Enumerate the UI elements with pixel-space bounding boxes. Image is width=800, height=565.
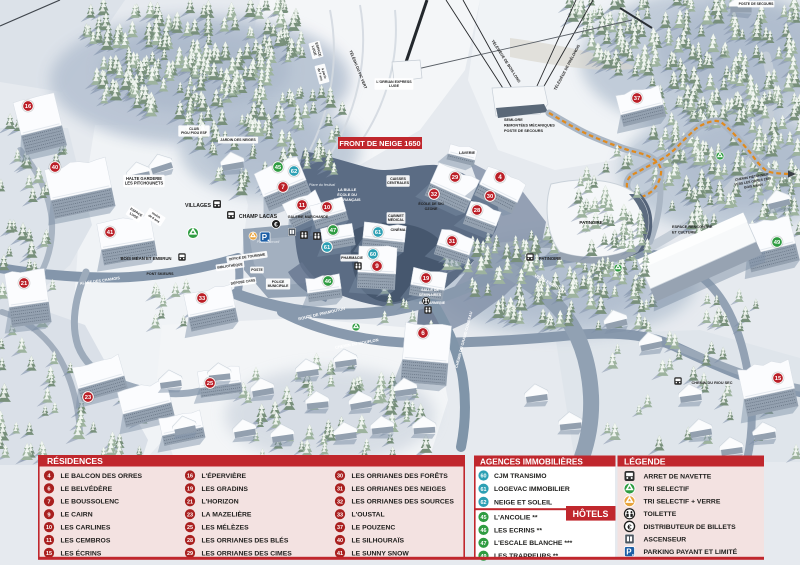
svg-text:25: 25: [187, 525, 193, 531]
svg-text:33: 33: [337, 512, 343, 518]
svg-text:L'ÉPERVIÈRE: L'ÉPERVIÈRE: [202, 471, 247, 480]
svg-text:PIOU PIOU ESF: PIOU PIOU ESF: [181, 131, 208, 135]
svg-text:61: 61: [481, 487, 487, 493]
svg-text:P: P: [262, 233, 268, 242]
svg-text:61: 61: [324, 245, 331, 251]
svg-text:9: 9: [375, 263, 379, 270]
svg-text:CAISSES: CAISSES: [390, 177, 406, 181]
svg-text:L'ANCOLIE **: L'ANCOLIE **: [494, 514, 538, 521]
svg-text:LE SUNNY SNOW: LE SUNNY SNOW: [352, 550, 410, 557]
svg-text:DISTRIBUTEUR DE BILLETS: DISTRIBUTEUR DE BILLETS: [644, 524, 737, 531]
svg-text:29: 29: [187, 551, 193, 557]
svg-text:LE BALCON DES ORRES: LE BALCON DES ORRES: [61, 473, 143, 480]
svg-text:SALLE DE: SALLE DE: [421, 288, 439, 292]
svg-text:47: 47: [481, 541, 487, 547]
svg-text:TRI SELECTIF + VERRE: TRI SELECTIF + VERRE: [644, 499, 721, 506]
svg-text:23: 23: [85, 395, 92, 401]
svg-text:7: 7: [281, 184, 285, 191]
svg-text:LE BOUSSOLENC: LE BOUSSOLENC: [61, 499, 120, 506]
svg-text:LES ÉCRINS: LES ÉCRINS: [61, 548, 102, 557]
svg-text:41: 41: [107, 230, 114, 236]
svg-text:31: 31: [337, 487, 343, 493]
svg-text:28: 28: [474, 208, 481, 214]
svg-text:LES ECRINS **: LES ECRINS **: [494, 527, 542, 534]
svg-text:LES ORRIANES DES CIMES: LES ORRIANES DES CIMES: [202, 550, 293, 557]
svg-text:SEMLORE: SEMLORE: [504, 118, 523, 122]
svg-text:32: 32: [431, 192, 437, 198]
svg-text:LES ORRIANES DES NEIGES: LES ORRIANES DES NEIGES: [352, 486, 447, 493]
svg-text:NEIGE ET SOLEIL: NEIGE ET SOLEIL: [494, 499, 552, 506]
svg-text:31: 31: [449, 239, 456, 245]
svg-text:33: 33: [199, 296, 206, 302]
svg-text:21: 21: [187, 499, 193, 505]
svg-text:30: 30: [337, 474, 343, 480]
svg-text:OZONE: OZONE: [425, 207, 438, 211]
svg-text:BOIS MÉAN ET EMBRUN: BOIS MÉAN ET EMBRUN: [120, 256, 171, 261]
svg-text:MÉDICAL: MÉDICAL: [388, 217, 405, 222]
svg-text:LUGE: LUGE: [389, 84, 400, 88]
svg-text:CHAMP LACAS: CHAMP LACAS: [239, 214, 278, 220]
svg-text:FRONT DE NEIGE 1650: FRONT DE NEIGE 1650: [339, 139, 420, 148]
svg-text:HÔTELS: HÔTELS: [573, 508, 609, 519]
svg-text:16: 16: [25, 104, 32, 110]
svg-text:L'OUSTAL: L'OUSTAL: [352, 512, 385, 519]
svg-text:29: 29: [452, 175, 459, 181]
svg-text:40: 40: [52, 165, 58, 171]
svg-text:ET CULTURE: ET CULTURE: [672, 230, 696, 234]
svg-text:CINÉMA: CINÉMA: [391, 227, 406, 232]
svg-text:11: 11: [46, 538, 52, 544]
svg-text:ÉCOLE DU: ÉCOLE DU: [337, 192, 357, 197]
svg-text:47: 47: [330, 228, 336, 234]
svg-text:JARDIN DES NEIGES: JARDIN DES NEIGES: [220, 138, 256, 142]
svg-text:46: 46: [481, 528, 487, 534]
svg-text:19: 19: [187, 487, 193, 493]
svg-text:4: 4: [498, 174, 502, 181]
svg-text:25: 25: [207, 381, 214, 387]
svg-text:61: 61: [375, 230, 382, 236]
svg-text:LES MÉLÈZES: LES MÉLÈZES: [202, 523, 250, 532]
svg-text:LOGEVAC IMMOBILIER: LOGEVAC IMMOBILIER: [494, 486, 570, 493]
svg-text:LES ORRIANES DES BLÉS: LES ORRIANES DES BLÉS: [202, 535, 289, 544]
svg-text:LÉGENDE: LÉGENDE: [624, 457, 666, 467]
svg-text:SKI FRANÇAIS: SKI FRANÇAIS: [333, 198, 360, 202]
svg-text:62: 62: [291, 169, 297, 175]
svg-text:37: 37: [337, 525, 343, 531]
svg-text:40: 40: [337, 538, 343, 544]
svg-text:LE BELVÉDÈRE: LE BELVÉDÈRE: [61, 484, 113, 493]
svg-text:€: €: [274, 222, 278, 229]
svg-text:PHARMACIE: PHARMACIE: [341, 256, 363, 260]
svg-text:LE POUZENC: LE POUZENC: [352, 525, 396, 532]
svg-text:60: 60: [481, 474, 487, 480]
svg-text:45: 45: [481, 515, 487, 521]
svg-text:VILLAGES: VILLAGES: [185, 203, 211, 209]
svg-text:32: 32: [337, 499, 343, 505]
svg-text:L'ORRIAN EXPRESS: L'ORRIAN EXPRESS: [376, 80, 412, 84]
svg-text:62: 62: [481, 500, 487, 506]
svg-text:ARRET DE NAVETTE: ARRET DE NAVETTE: [644, 473, 712, 480]
svg-text:L'ESCALE BLANCHE ***: L'ESCALE BLANCHE ***: [494, 540, 573, 547]
svg-text:PONT SKIEURS: PONT SKIEURS: [147, 272, 175, 276]
svg-text:PARKING PAYANT ET LIMITÉ: PARKING PAYANT ET LIMITÉ: [644, 547, 738, 556]
svg-text:21: 21: [21, 281, 28, 287]
svg-text:L'HORIZON: L'HORIZON: [202, 499, 239, 506]
svg-text:16: 16: [187, 474, 193, 480]
svg-text:30: 30: [487, 194, 493, 200]
svg-text:TRI SELECTIF: TRI SELECTIF: [644, 486, 690, 493]
svg-text:PATINOIRE: PATINOIRE: [539, 256, 561, 261]
svg-text:REMONTÉES MÉCANIQUES: REMONTÉES MÉCANIQUES: [504, 122, 555, 127]
svg-text:23: 23: [187, 512, 193, 518]
svg-text:LES CARLINES: LES CARLINES: [61, 525, 111, 532]
svg-text:€: €: [627, 522, 632, 531]
svg-text:ASCENSEUR: ASCENSEUR: [644, 536, 687, 543]
svg-text:POSTE DE SECOURS: POSTE DE SECOURS: [739, 2, 775, 6]
svg-text:P: P: [626, 548, 632, 557]
svg-text:10: 10: [324, 205, 330, 211]
svg-text:CJM TRANSIMO: CJM TRANSIMO: [494, 473, 547, 480]
svg-text:PATINOIRE: PATINOIRE: [579, 220, 602, 225]
svg-text:RÉSIDENCES: RÉSIDENCES: [47, 456, 103, 466]
svg-text:LE SILHOURAÏS: LE SILHOURAÏS: [352, 536, 405, 544]
svg-text:LES GRADINS: LES GRADINS: [202, 486, 249, 493]
svg-text:SÉMINAIRES: SÉMINAIRES: [419, 292, 442, 297]
svg-text:60: 60: [370, 252, 376, 258]
svg-text:GALERIE MARCHANDE: GALERIE MARCHANDE: [288, 215, 329, 219]
svg-text:28: 28: [187, 538, 193, 544]
svg-text:Place du festival: Place du festival: [309, 183, 335, 187]
svg-text:49: 49: [774, 240, 781, 246]
svg-text:7: 7: [47, 499, 50, 505]
svg-text:LAVERIE: LAVERIE: [459, 151, 476, 155]
svg-text:CENTRALES: CENTRALES: [387, 181, 410, 185]
svg-text:LES ORRIANES DES SOURCES: LES ORRIANES DES SOURCES: [352, 499, 455, 506]
svg-text:MUNICIPALE: MUNICIPALE: [268, 284, 290, 288]
svg-text:POSTE DE SECOURS: POSTE DE SECOURS: [504, 129, 543, 133]
svg-text:37: 37: [634, 96, 640, 102]
svg-text:LE CAIRN: LE CAIRN: [61, 512, 93, 519]
svg-text:41: 41: [337, 551, 343, 557]
svg-text:6: 6: [421, 330, 425, 337]
svg-text:11: 11: [299, 203, 306, 209]
svg-text:19: 19: [423, 276, 430, 282]
svg-text:ESPACE RENCONTRE: ESPACE RENCONTRE: [672, 225, 713, 229]
svg-text:45: 45: [275, 165, 282, 171]
svg-text:ÉCOLE DE SKI: ÉCOLE DE SKI: [418, 201, 443, 206]
svg-text:LA BULLE: LA BULLE: [338, 188, 357, 192]
svg-text:10: 10: [46, 525, 52, 531]
svg-text:LES CEMBROS: LES CEMBROS: [61, 537, 111, 544]
svg-text:CHEMIN DU RIOU SEC: CHEMIN DU RIOU SEC: [692, 381, 733, 385]
svg-text:LES PITCHOUNETS: LES PITCHOUNETS: [125, 181, 164, 186]
svg-text:TOILETTE: TOILETTE: [644, 511, 677, 518]
svg-text:AGENCES IMMOBILIÈRES: AGENCES IMMOBILIÈRES: [480, 457, 583, 467]
svg-text:46: 46: [325, 279, 332, 285]
svg-text:CABINET: CABINET: [388, 214, 405, 218]
svg-text:LES ORRIANES DES FORÊTS: LES ORRIANES DES FORÊTS: [352, 471, 449, 480]
svg-text:15: 15: [46, 551, 52, 557]
svg-text:POSTE: POSTE: [251, 268, 263, 272]
svg-text:15: 15: [775, 376, 782, 382]
svg-text:LA MAZELIÈRE: LA MAZELIÈRE: [202, 510, 252, 519]
